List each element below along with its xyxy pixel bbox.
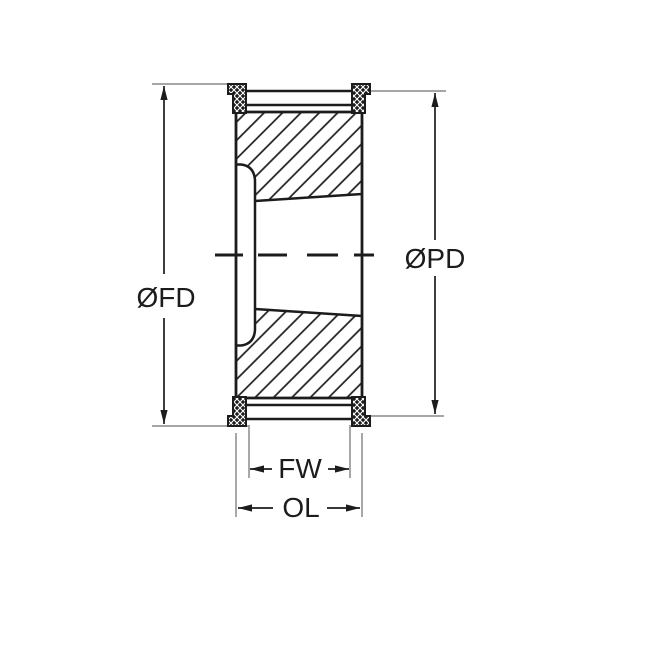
flange-top-left — [228, 84, 246, 113]
pitch-diameter-label: ØPD — [405, 243, 466, 274]
pulley-technical-drawing: ØFD ØPD FW OL — [0, 0, 670, 670]
flange-bottom-right — [352, 397, 370, 426]
pulley-section — [164, 84, 435, 508]
rim-band-bottom — [246, 405, 352, 419]
drawing-canvas: ØFD ØPD FW OL — [0, 0, 670, 670]
overall-length-label: OL — [282, 492, 319, 523]
flange-top-right — [352, 84, 370, 113]
flange-bottom-left — [228, 397, 246, 426]
rim-band-top — [246, 91, 352, 105]
face-width-label: FW — [278, 453, 322, 484]
flange-diameter-label: ØFD — [136, 282, 195, 313]
